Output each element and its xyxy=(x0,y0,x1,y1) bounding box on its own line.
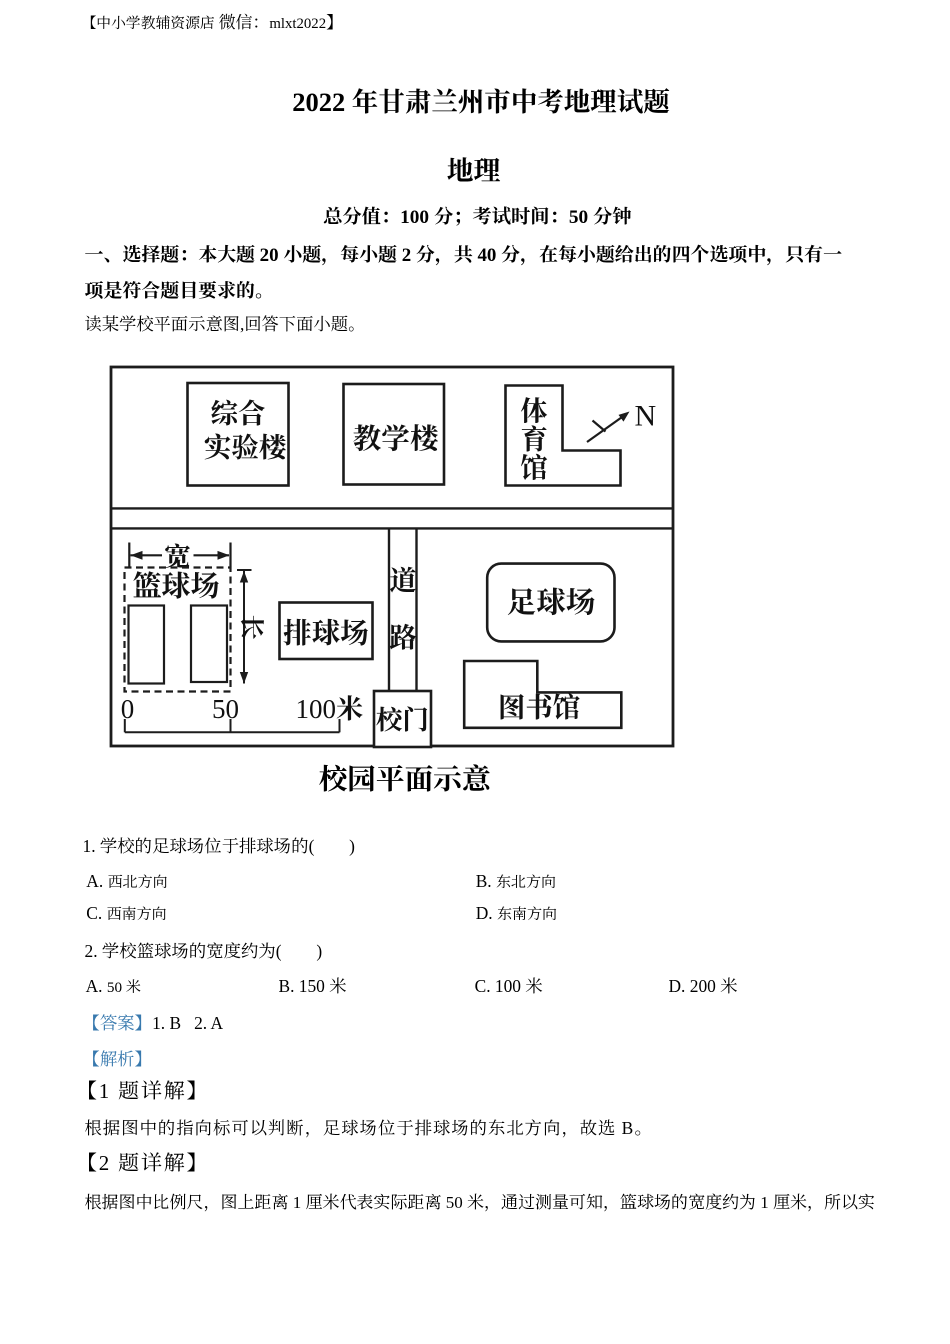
svg-text:50: 50 xyxy=(212,694,239,724)
svg-text:100米: 100米 xyxy=(296,694,364,724)
svg-text:篮球场: 篮球场 xyxy=(133,571,220,603)
svg-text:N: N xyxy=(635,400,657,433)
svg-text:教学楼: 教学楼 xyxy=(353,424,439,456)
svg-text:实验楼: 实验楼 xyxy=(204,432,287,463)
svg-text:图书馆: 图书馆 xyxy=(498,692,581,723)
svg-text:体: 体 xyxy=(520,396,548,427)
svg-text:育: 育 xyxy=(520,424,548,455)
svg-text:0: 0 xyxy=(121,694,135,724)
svg-text:道: 道 xyxy=(389,565,417,596)
svg-text:综合: 综合 xyxy=(211,398,266,429)
svg-text:长: 长 xyxy=(237,614,264,639)
svg-text:排球场: 排球场 xyxy=(283,618,369,650)
svg-text:校门: 校门 xyxy=(376,705,429,735)
svg-text:足球场: 足球场 xyxy=(507,588,596,620)
svg-text:馆: 馆 xyxy=(520,453,548,484)
svg-text:路: 路 xyxy=(389,622,417,653)
